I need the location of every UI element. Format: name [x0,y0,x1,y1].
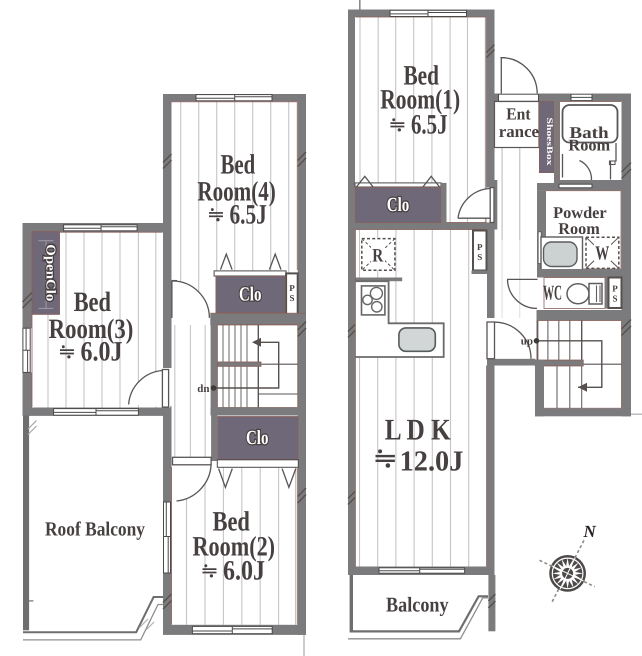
svg-text:12.0J: 12.0J [400,446,464,478]
svg-text:6.5J: 6.5J [411,110,448,141]
svg-text:ShoesBox: ShoesBox [545,118,555,167]
svg-text:P: P [289,283,295,293]
svg-text:Room: Room [568,136,610,155]
svg-text:Roof Balcony: Roof Balcony [45,519,145,541]
svg-text:up: up [521,336,533,348]
svg-text:Room: Room [558,219,600,238]
svg-text:6.5J: 6.5J [230,199,267,230]
svg-text:Clo: Clo [387,194,410,216]
svg-text:S: S [477,252,482,262]
svg-text:S: S [289,293,294,303]
svg-text:6.0J: 6.0J [81,337,123,368]
svg-text:L D K: L D K [385,413,452,446]
svg-text:W: W [595,243,609,265]
svg-text:OpenClo: OpenClo [44,244,59,301]
svg-text:Balcony: Balcony [386,593,449,617]
svg-text:P: P [612,284,618,294]
svg-text:S: S [612,294,617,304]
svg-text:6.0J: 6.0J [223,556,265,587]
svg-text:Clo: Clo [246,427,269,449]
svg-text:dn: dn [197,383,209,395]
svg-text:P: P [477,242,483,252]
svg-text:rance: rance [499,122,540,141]
svg-text:Clo: Clo [239,284,262,306]
svg-text:WC: WC [543,281,562,305]
svg-text:Ent: Ent [506,104,531,123]
svg-text:N: N [582,522,596,541]
svg-text:R: R [372,246,383,267]
